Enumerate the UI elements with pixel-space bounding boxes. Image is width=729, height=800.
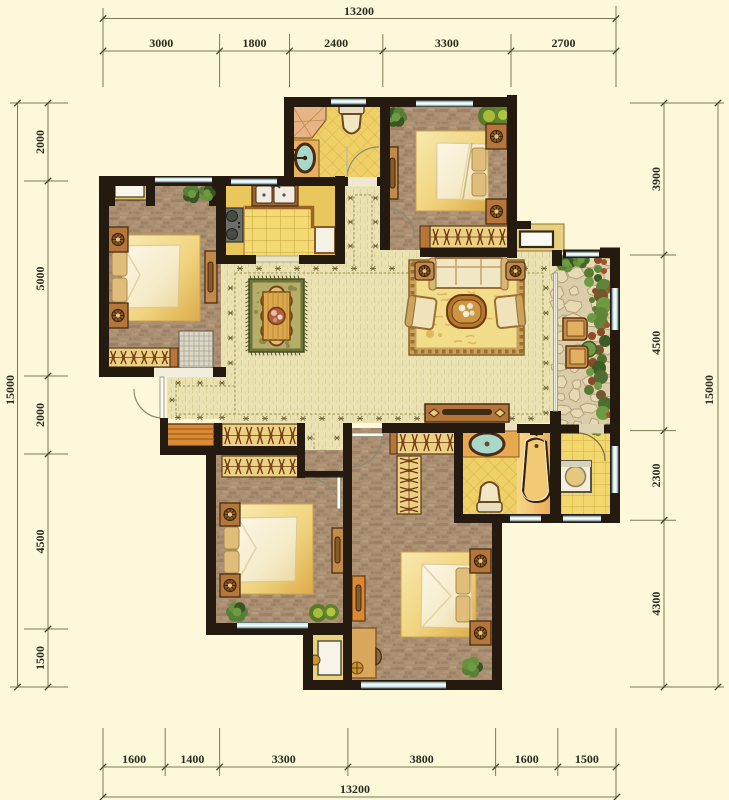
svg-text:4500: 4500 xyxy=(649,331,663,355)
svg-text:15000: 15000 xyxy=(3,375,17,405)
svg-text:1800: 1800 xyxy=(243,36,267,50)
svg-text:2400: 2400 xyxy=(324,36,348,50)
svg-text:3800: 3800 xyxy=(410,752,434,766)
svg-text:1500: 1500 xyxy=(33,646,47,670)
svg-text:1600: 1600 xyxy=(122,752,146,766)
svg-text:2000: 2000 xyxy=(33,130,47,154)
svg-text:3300: 3300 xyxy=(272,752,296,766)
svg-text:2000: 2000 xyxy=(33,403,47,427)
svg-text:13200: 13200 xyxy=(344,4,374,18)
svg-text:1600: 1600 xyxy=(515,752,539,766)
svg-text:3900: 3900 xyxy=(649,167,663,191)
svg-text:5000: 5000 xyxy=(33,267,47,291)
svg-text:3000: 3000 xyxy=(149,36,173,50)
svg-text:15000: 15000 xyxy=(702,375,716,405)
svg-text:1500: 1500 xyxy=(575,752,599,766)
svg-text:4300: 4300 xyxy=(649,592,663,616)
svg-text:3300: 3300 xyxy=(435,36,459,50)
svg-text:1400: 1400 xyxy=(180,752,204,766)
svg-text:2300: 2300 xyxy=(649,463,663,487)
svg-text:13200: 13200 xyxy=(340,782,370,796)
svg-text:4500: 4500 xyxy=(33,530,47,554)
svg-text:2700: 2700 xyxy=(552,36,576,50)
